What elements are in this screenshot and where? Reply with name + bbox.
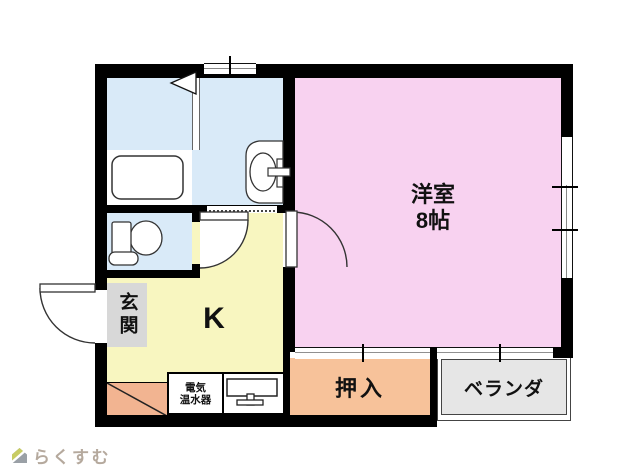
western-room-label: 洋室 8帖 (378, 182, 488, 234)
wall-bath-bottom (95, 205, 200, 213)
water-heater-cell: 電気 温水器 (169, 374, 222, 413)
wall-center-upper (283, 76, 295, 211)
wall-corner-southeast (553, 347, 573, 358)
bathtub-alcove (107, 150, 192, 205)
veranda-area: ベランダ (441, 359, 567, 415)
sliding-door-tick (362, 344, 364, 362)
wall-toilet-bottom (95, 270, 200, 278)
window-tick (499, 344, 501, 362)
wall-bottom (95, 415, 437, 427)
veranda-window (437, 347, 553, 359)
porch-diagonal (107, 383, 167, 416)
wall-toilet-right-upper (192, 205, 200, 222)
closet-label: 押入 (335, 371, 385, 403)
water-heater-label-2: 温水器 (180, 394, 212, 406)
dashed-line (209, 210, 275, 212)
logo-text: らくすむ (33, 443, 111, 468)
toilet-room (107, 213, 192, 270)
porch-area (107, 382, 167, 415)
entrance-area: 玄関 (107, 283, 147, 347)
wall-closet-right (430, 347, 437, 427)
wall-left-upper (95, 64, 107, 290)
wall-right-upper (561, 64, 573, 137)
window-sash-line (566, 185, 567, 278)
bath-door-track (192, 76, 200, 150)
kitchen-label: K (194, 302, 234, 336)
veranda-label: ベランダ (464, 374, 544, 401)
house-logo-icon (11, 447, 28, 464)
wall-right-mid (561, 278, 573, 358)
wall-top (95, 64, 573, 78)
floor-plan: 玄関 押入 ベランダ (0, 0, 640, 469)
window-right-tick-1 (552, 186, 578, 188)
western-room-name: 洋室 (411, 182, 455, 207)
entrance-door-swing (40, 284, 95, 343)
western-room-size: 8帖 (416, 208, 450, 233)
closet-area: 押入 (290, 358, 430, 415)
window-right (561, 137, 573, 278)
wall-washroom-bottom-right (277, 205, 295, 213)
window-right-tick-2 (552, 229, 578, 231)
wall-center-lower (283, 267, 295, 352)
window-top-tick (229, 56, 231, 76)
water-heater-box: 電気 温水器 (167, 372, 285, 415)
open-boundary-washroom-kitchen (207, 205, 277, 213)
wall-toilet-right-lower (192, 264, 200, 278)
entrance-label: 玄関 (114, 292, 141, 338)
water-heater-label-1: 電気 (185, 382, 206, 394)
window-line (437, 352, 553, 353)
box-divider (222, 374, 224, 413)
rakusumu-logo: らくすむ (11, 443, 111, 468)
